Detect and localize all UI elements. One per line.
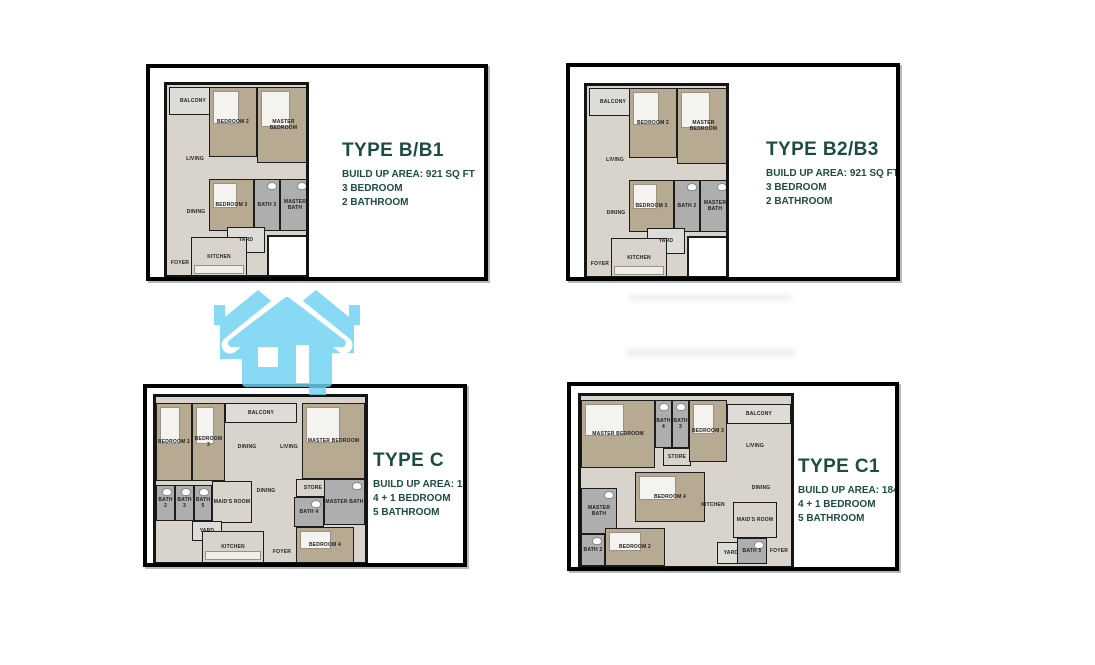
- room-label: STORE: [297, 485, 329, 491]
- room-label: DINING: [739, 485, 783, 491]
- plan-cutout: [687, 236, 729, 279]
- room-label: LIVING: [727, 443, 783, 449]
- room-bath-2: BATH 2: [581, 534, 605, 566]
- room-label: KITCHEN: [612, 255, 666, 261]
- room-label: DINING: [225, 444, 269, 450]
- room-label: FOYER: [767, 548, 791, 554]
- build-up-area: BUILD UP AREA: 1842 SQ FT: [373, 478, 467, 492]
- room-label: MASTER BATH: [325, 499, 364, 505]
- room-label: BALCONY: [728, 411, 790, 417]
- room-label: MASTER BEDROOM: [303, 438, 364, 444]
- room-master-bath: MASTER BATH: [324, 479, 365, 525]
- floorplan-type-b-b1: BALCONYBEDROOM 2MASTER BEDROOMLIVINGDINI…: [164, 82, 309, 278]
- specs-type-c: TYPE C BUILD UP AREA: 1842 SQ FT 4 + 1 B…: [373, 450, 467, 520]
- room-bath-3: BATH 3: [672, 400, 689, 448]
- room-label: BATH 3: [176, 497, 193, 509]
- room-bath-2: BATH 2: [254, 179, 280, 231]
- room-master-bedroom: MASTER BEDROOM: [581, 400, 655, 468]
- room-label: BALCONY: [590, 99, 636, 105]
- bedroom-count: 4 + 1 BEDROOM: [798, 498, 899, 512]
- room-label: MAID'S ROOM: [213, 499, 251, 505]
- room-bath-2: BATH 2: [156, 485, 175, 521]
- room-label: FOYER: [264, 549, 300, 555]
- room-label: BATH 2: [675, 203, 699, 209]
- floorplan-type-c1: MASTER BEDROOMBATH 4BATH 3STOREBEDROOM 3…: [578, 393, 794, 569]
- room-label: BATH 4: [656, 418, 671, 430]
- room-master-bedroom: MASTER BEDROOM: [257, 87, 309, 163]
- bathroom-count: 2 BATHROOM: [342, 196, 475, 210]
- watermark-ghost: [626, 348, 796, 357]
- room-bedroom-2: BEDROOM 2: [605, 528, 665, 566]
- room-label: LIVING: [171, 156, 219, 162]
- room-label: MASTER BEDROOM: [582, 431, 654, 437]
- room-bath-4: BATH 4: [655, 400, 672, 448]
- room-master-bath: MASTER BATH: [700, 180, 729, 232]
- build-up-area: BUILD UP AREA: 921 SQ FT: [342, 168, 475, 182]
- room-label: BEDROOM 3: [630, 203, 673, 209]
- room-label: BEDROOM 4: [636, 494, 704, 500]
- room-bedroom-3: BEDROOM 3: [629, 180, 674, 232]
- room-dining: DINING: [225, 423, 269, 471]
- floorplan-type-c: BEDROOM 2BEDROOM 3BALCONYDININGLIVINGMAS…: [153, 394, 368, 565]
- room-foyer: FOYER: [167, 249, 193, 277]
- room-label: LIVING: [591, 157, 639, 163]
- panel-type-c: BEDROOM 2BEDROOM 3BALCONYDININGLIVINGMAS…: [143, 384, 467, 567]
- room-label: BEDROOM 2: [606, 544, 664, 550]
- room-label: BEDROOM 3: [193, 436, 224, 448]
- room-store: STORE: [663, 448, 691, 466]
- room-label: KITCHEN: [689, 502, 737, 508]
- panel-type-b2-b3: BALCONYBEDROOM 2MASTER BEDROOMLIVINGDINI…: [566, 63, 900, 281]
- room-label: DINING: [244, 488, 288, 494]
- room-label: BALCONY: [226, 410, 296, 416]
- room-dining: DINING: [739, 472, 783, 504]
- panel-title: TYPE B2/B3: [766, 139, 899, 161]
- room-kitchen: KITCHEN: [191, 237, 247, 277]
- room-balcony: BALCONY: [225, 403, 297, 423]
- room-bedroom-3: BEDROOM 3: [192, 403, 225, 481]
- room-label: BATH 5: [738, 548, 766, 554]
- room-bedroom-4: BEDROOM 4: [635, 472, 705, 522]
- room-bath-3: BATH 3: [175, 485, 194, 521]
- bathroom-count: 2 BATHROOM: [766, 195, 899, 209]
- room-bath-5: BATH 5: [194, 485, 212, 521]
- room-master-bath: MASTER BATH: [280, 179, 309, 231]
- room-bath-4: BATH 4: [294, 497, 324, 527]
- room-label: BEDROOM 2: [630, 120, 676, 126]
- watermark-ghost: [628, 294, 793, 301]
- plan-cutout: [267, 235, 309, 278]
- room-label: BALCONY: [170, 98, 216, 104]
- room-label: MASTER BATH: [582, 505, 616, 517]
- panel-type-c1: MASTER BEDROOMBATH 4BATH 3STOREBEDROOM 3…: [567, 382, 899, 571]
- room-master-bedroom: MASTER BEDROOM: [302, 403, 365, 479]
- room-kitchen: KITCHEN: [202, 531, 264, 563]
- bathroom-count: 5 BATHROOM: [798, 512, 899, 526]
- room-label: BATH 3: [673, 418, 688, 430]
- specs-type-b2-b3: TYPE B2/B3 BUILD UP AREA: 921 SQ FT 3 BE…: [766, 139, 899, 209]
- room-label: BEDROOM 2: [157, 439, 191, 445]
- room-bath-5: BATH 5: [737, 538, 767, 564]
- floorplan-brochure-page: BALCONYBEDROOM 2MASTER BEDROOMLIVINGDINI…: [0, 0, 1095, 665]
- room-living: LIVING: [727, 424, 783, 468]
- room-maid-s-room: MAID'S ROOM: [733, 502, 777, 538]
- room-label: BATH 2: [157, 497, 174, 509]
- room-label: MASTER BEDROOM: [258, 119, 309, 131]
- room-label: MASTER BATH: [281, 199, 309, 211]
- room-label: YARD: [648, 238, 684, 244]
- room-label: BEDROOM 3: [690, 428, 726, 434]
- room-bedroom-3: BEDROOM 3: [209, 179, 254, 231]
- room-label: YARD: [228, 237, 264, 243]
- room-label: FOYER: [587, 261, 613, 267]
- room-label: KITCHEN: [203, 544, 263, 550]
- room-label: MAID'S ROOM: [734, 517, 776, 523]
- bedroom-count: 4 + 1 BEDROOM: [373, 492, 467, 506]
- room-foyer: FOYER: [587, 250, 613, 278]
- room-label: BATH 2: [255, 202, 279, 208]
- room-label: MASTER BEDROOM: [678, 120, 729, 132]
- room-kitchen: KITCHEN: [611, 238, 667, 278]
- panel-title: TYPE C: [373, 450, 467, 472]
- panel-title: TYPE C1: [798, 456, 899, 478]
- build-up-area: BUILD UP AREA: 921 SQ FT: [766, 167, 899, 181]
- room-balcony: BALCONY: [727, 404, 791, 424]
- room-bedroom-3: BEDROOM 3: [689, 400, 727, 462]
- floorplan-type-b2-b3: BALCONYBEDROOM 2MASTER BEDROOMLIVINGDINI…: [584, 83, 729, 279]
- room-label: DINING: [591, 210, 641, 216]
- room-label: BEDROOM 3: [210, 202, 253, 208]
- bathroom-count: 5 BATHROOM: [373, 506, 467, 520]
- specs-type-c1: TYPE C1 BUILD UP AREA: 1842 SQ FT 4 + 1 …: [798, 456, 899, 526]
- room-bedroom-2: BEDROOM 2: [156, 403, 192, 481]
- room-label: BATH 2: [582, 547, 604, 553]
- room-master-bedroom: MASTER BEDROOM: [677, 88, 729, 164]
- room-label: BATH 5: [195, 497, 211, 509]
- room-label: BEDROOM 2: [210, 119, 256, 125]
- room-label: STORE: [664, 454, 690, 460]
- room-label: BATH 4: [295, 509, 323, 515]
- room-foyer: FOYER: [264, 541, 300, 563]
- room-bedroom-4: BEDROOM 4: [296, 527, 354, 563]
- house-trio-icon: [210, 279, 364, 397]
- room-label: FOYER: [167, 260, 193, 266]
- bedroom-count: 3 BEDROOM: [342, 182, 475, 196]
- room-foyer: FOYER: [767, 536, 791, 566]
- room-label: YARD: [193, 528, 221, 534]
- room-label: MASTER BATH: [701, 200, 729, 212]
- room-bath-2: BATH 2: [674, 180, 700, 232]
- room-label: LIVING: [269, 444, 309, 450]
- specs-type-b-b1: TYPE B/B1 BUILD UP AREA: 921 SQ FT 3 BED…: [342, 140, 475, 210]
- panel-title: TYPE B/B1: [342, 140, 475, 162]
- build-up-area: BUILD UP AREA: 1842 SQ FT: [798, 484, 899, 498]
- panel-type-b-b1: BALCONYBEDROOM 2MASTER BEDROOMLIVINGDINI…: [146, 64, 488, 281]
- room-label: DINING: [171, 209, 221, 215]
- bedroom-count: 3 BEDROOM: [766, 181, 899, 195]
- room-label: KITCHEN: [192, 254, 246, 260]
- room-label: BEDROOM 4: [297, 542, 353, 548]
